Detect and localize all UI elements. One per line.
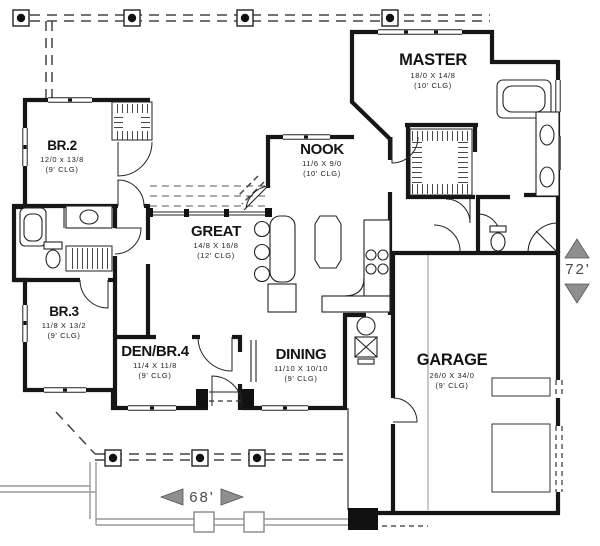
room-label-nook: NOOK 11/6 X 9/0 (10' CLG) (300, 142, 344, 178)
room-ceiling: (12' CLG) (191, 251, 241, 260)
room-dims: 18/0 X 14/8 (399, 71, 467, 80)
room-dims: 12/0 x 13/8 (40, 155, 84, 164)
entry-pilaster-right (242, 389, 254, 408)
room-name: BR.3 (42, 305, 86, 319)
room-dims: 26/0 X 34/0 (417, 371, 488, 380)
room-label-br2: BR.2 12/0 x 13/8 (9' CLG) (40, 139, 84, 174)
room-ceiling: (9' CLG) (42, 331, 86, 340)
dim-arrow-right (221, 489, 243, 505)
entry-pilaster-left (196, 389, 208, 408)
room-name: GARAGE (417, 352, 488, 369)
room-label-dining: DINING 11/10 X 10/10 (9' CLG) (274, 347, 328, 383)
dim-arrow-down (565, 284, 589, 303)
room-ceiling: (10' CLG) (300, 169, 344, 178)
master-bath-fixtures (490, 80, 559, 253)
room-label-br3: BR.3 11/8 X 13/2 (9' CLG) (42, 305, 86, 340)
dim-arrow-up (565, 239, 589, 258)
entry-step (348, 508, 378, 530)
room-label-garage: GARAGE 26/0 X 34/0 (9' CLG) (417, 352, 488, 390)
room-name: DEN/BR.4 (121, 344, 189, 359)
room-label-den: DEN/BR.4 11/4 X 11/8 (9' CLG) (121, 344, 189, 380)
garage-doors (492, 378, 562, 492)
room-name: MASTER (399, 52, 467, 69)
plan-depth-dimension: 72' (565, 261, 591, 278)
room-dims: 11/10 X 10/10 (274, 364, 328, 373)
room-label-great: GREAT 14/8 X 16/8 (12' CLG) (191, 224, 241, 260)
kitchen-fixtures (255, 216, 391, 312)
room-name: DINING (274, 347, 328, 362)
room-ceiling: (9' CLG) (417, 381, 488, 390)
room-name: GREAT (191, 224, 241, 239)
room-dims: 11/8 X 13/2 (42, 321, 86, 330)
laundry-fixtures (355, 317, 377, 364)
floor-plan: MASTER 18/0 X 14/8 (10' CLG) NOOK 11/6 X… (0, 0, 600, 546)
porch-columns (105, 450, 265, 466)
dim-arrow-left (161, 489, 183, 505)
floor-plan-drawing (0, 0, 600, 546)
entry-dashes (209, 401, 428, 526)
plan-width-dimension: 68' (189, 489, 215, 506)
room-name: NOOK (300, 142, 344, 157)
room-dims: 11/4 X 11/8 (121, 361, 189, 370)
room-dims: 11/6 X 9/0 (300, 159, 344, 168)
patio-columns (13, 10, 398, 26)
room-label-master: MASTER 18/0 X 14/8 (10' CLG) (399, 52, 467, 90)
room-ceiling: (9' CLG) (274, 374, 328, 383)
room-dims: 14/8 X 16/8 (191, 241, 241, 250)
room-name: BR.2 (40, 139, 84, 153)
room-ceiling: (10' CLG) (399, 81, 467, 90)
room-ceiling: (9' CLG) (121, 371, 189, 380)
room-ceiling: (9' CLG) (40, 165, 84, 174)
